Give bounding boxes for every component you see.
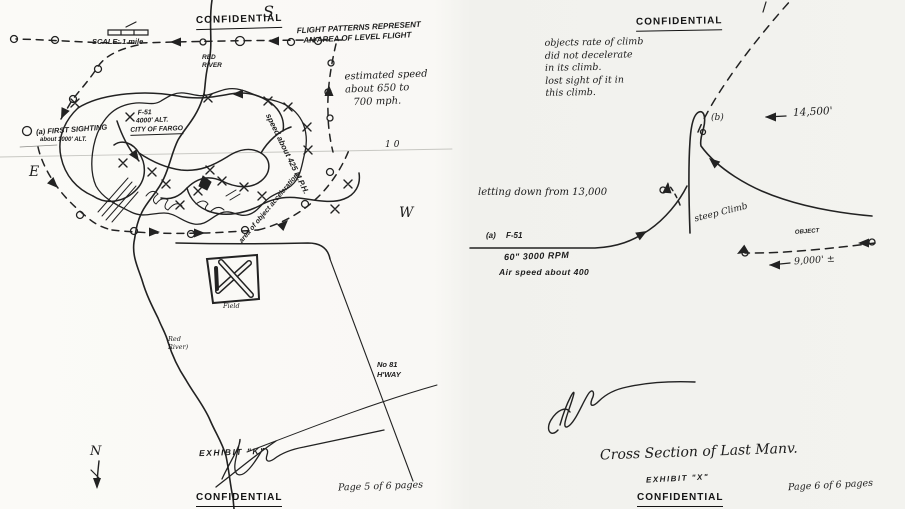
direction-arrowheads (47, 37, 333, 238)
engine-note: 60" 3000 RPM (504, 250, 570, 264)
red-river-label-top: RED RIVER (202, 54, 222, 71)
signature-right (549, 382, 695, 434)
climb-dashed-segment (668, 184, 680, 205)
red-river-line (134, 0, 234, 509)
airfield-symbol (207, 255, 259, 303)
field-label: Field (223, 302, 240, 310)
scale-label: SCALE: 1 mile (92, 37, 143, 46)
climb-note: objects rate of climb did not decelerate… (544, 36, 644, 100)
altitude-arrow-shafts (766, 116, 790, 265)
estimated-speed-note: estimated speed about 650 to 700 mph. (344, 68, 428, 110)
compass-north-label: N (90, 444, 101, 460)
sketch-line-art (0, 0, 905, 509)
point-b-label: (b) (711, 113, 724, 124)
f51-flight-loops (60, 93, 359, 259)
crease-number: 10 (385, 140, 402, 151)
airspeed-note: Air speed about 400 (499, 267, 589, 278)
scanned-document: CONFIDENTIAL S SCALE: 1 mile FLIGHT PATT… (0, 0, 905, 509)
scale-bar-icon (108, 22, 148, 35)
letting-down-note: letting down from 13,000 (478, 187, 607, 200)
object-approach-dashed (745, 243, 875, 253)
direction-arrowheads-right (635, 113, 869, 270)
compass-south-label: S (263, 2, 274, 22)
first-sighting-altitude: about 1000' ALT. (40, 137, 87, 145)
confidential-stamp-bottom-left: CONFIDENTIAL (196, 486, 282, 507)
confidential-stamp-top-right: CONFIDENTIAL (636, 10, 722, 31)
confidential-stamp-bottom-right: CONFIDENTIAL (637, 486, 723, 507)
north-arrow-icon (91, 461, 101, 489)
red-river-label-bottom: Red River) (168, 336, 188, 352)
f51-position-label: F-51 4000' ALT. CITY OF FARGO (130, 108, 184, 136)
signature-left (216, 385, 437, 487)
highway-label: No 81 H'WAY (377, 360, 401, 380)
point-a-label: (a) F-51 (486, 231, 522, 241)
pen-tick (763, 2, 766, 12)
peak-altitude-label: 14,500' (793, 105, 833, 120)
right-cross-section-art (470, 0, 875, 433)
compass-east-label: E (29, 164, 39, 182)
compass-west-label: W (399, 205, 413, 223)
